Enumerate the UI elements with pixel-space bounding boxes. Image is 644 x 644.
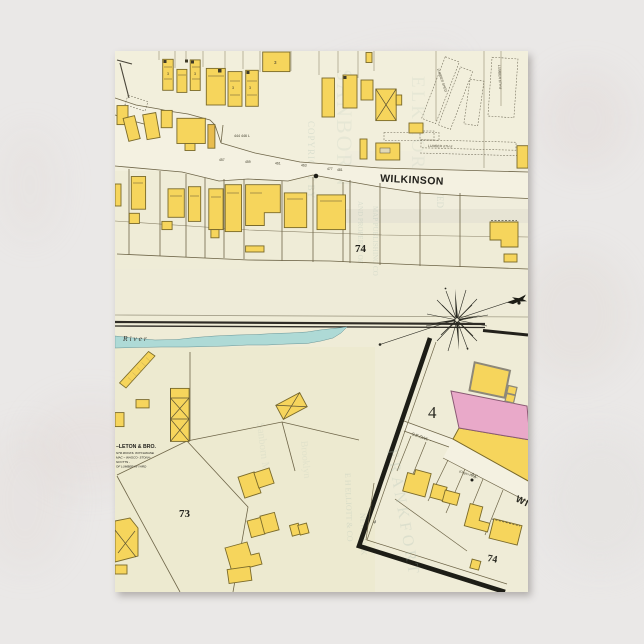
svg-text:SCOTTS -: SCOTTS - [116,460,130,464]
svg-text:–LETON & BRO.: –LETON & BRO. [116,444,157,450]
svg-text:STR.ROCKS. WITCHWANE: STR.ROCKS. WITCHWANE [116,451,155,455]
svg-text:3: 3 [232,86,234,90]
svg-text:4: 4 [428,403,437,422]
svg-text:74: 74 [355,243,367,255]
svg-text:R i v e r: R i v e r [122,334,147,343]
svg-text:459: 459 [245,160,251,164]
svg-text:461: 461 [275,162,281,166]
svg-text:463: 463 [301,164,307,168]
svg-text:3: 3 [249,86,251,90]
svg-text:444 446 L: 444 446 L [234,134,250,138]
svg-text:73: 73 [179,508,191,520]
svg-text:OF LUMBER IN YARD: OF LUMBER IN YARD [116,465,147,469]
svg-text:3: 3 [194,72,196,76]
svg-text:MAC – WAGCO- STONA-: MAC – WAGCO- STONA- [116,456,151,460]
svg-text:MAP PUBLISHING CO: MAP PUBLISHING CO [371,206,379,276]
svg-text:LUMBER 6TH 8: LUMBER 6TH 8 [428,144,453,149]
svg-text:74: 74 [486,553,498,566]
svg-text:481: 481 [337,168,343,172]
svg-text:457: 457 [219,158,225,162]
svg-text:COPYRIGHT BY: COPYRIGHT BY [306,121,316,199]
svg-text:3: 3 [167,72,169,76]
svg-text:477: 477 [327,167,333,171]
